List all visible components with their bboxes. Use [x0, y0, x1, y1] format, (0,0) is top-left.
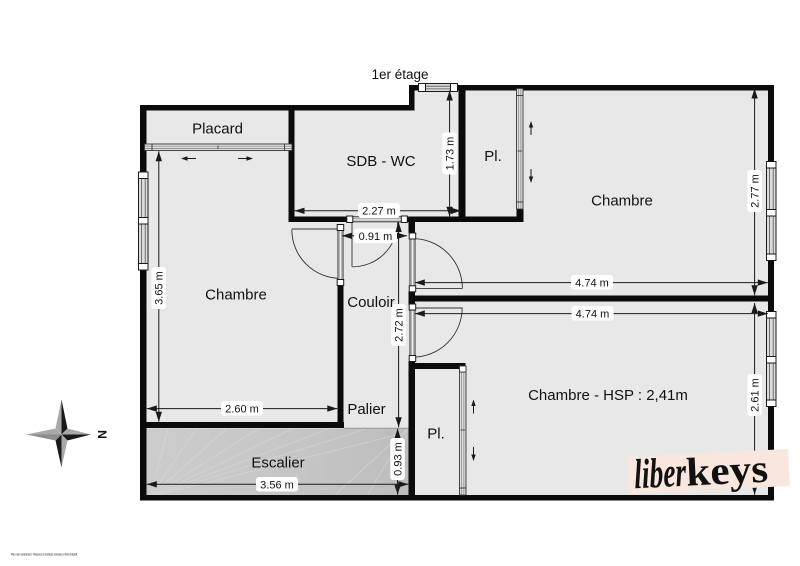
svg-text:0.91 m: 0.91 m — [359, 231, 393, 243]
svg-text:2.27 m: 2.27 m — [362, 206, 396, 218]
svg-text:3.56 m: 3.56 m — [260, 479, 294, 491]
svg-text:1.73 m: 1.73 m — [445, 137, 457, 171]
svg-text:Plan non contractuel - Mesures: Plan non contractuel - Mesures et surfac… — [11, 553, 77, 557]
svg-text:SDB - WC: SDB - WC — [346, 153, 415, 170]
svg-text:2.72 m: 2.72 m — [394, 308, 406, 342]
svg-text:Couloir: Couloir — [347, 294, 395, 311]
svg-text:keys: keys — [685, 446, 769, 495]
svg-text:Pl.: Pl. — [427, 426, 445, 443]
svg-text:liber: liber — [633, 450, 688, 499]
svg-text:2.60 m: 2.60 m — [225, 404, 259, 416]
svg-text:2.77 m: 2.77 m — [750, 174, 762, 208]
svg-text:Chambre: Chambre — [591, 193, 653, 210]
svg-text:N: N — [95, 430, 109, 439]
svg-text:Pl.: Pl. — [484, 148, 502, 165]
svg-text:Escalier: Escalier — [251, 455, 304, 472]
svg-text:Chambre: Chambre — [205, 287, 267, 304]
svg-text:4.74 m: 4.74 m — [576, 309, 610, 321]
svg-text:2.61 m: 2.61 m — [750, 378, 762, 412]
svg-text:0.93 m: 0.93 m — [393, 442, 405, 476]
svg-text:3.65 m: 3.65 m — [154, 271, 166, 305]
svg-text:Chambre - HSP : 2,41m: Chambre - HSP : 2,41m — [528, 387, 688, 404]
svg-text:4.74 m: 4.74 m — [575, 278, 609, 290]
svg-text:1er étage: 1er étage — [371, 67, 428, 82]
svg-text:Placard: Placard — [192, 121, 243, 138]
svg-text:Palier: Palier — [347, 401, 385, 418]
